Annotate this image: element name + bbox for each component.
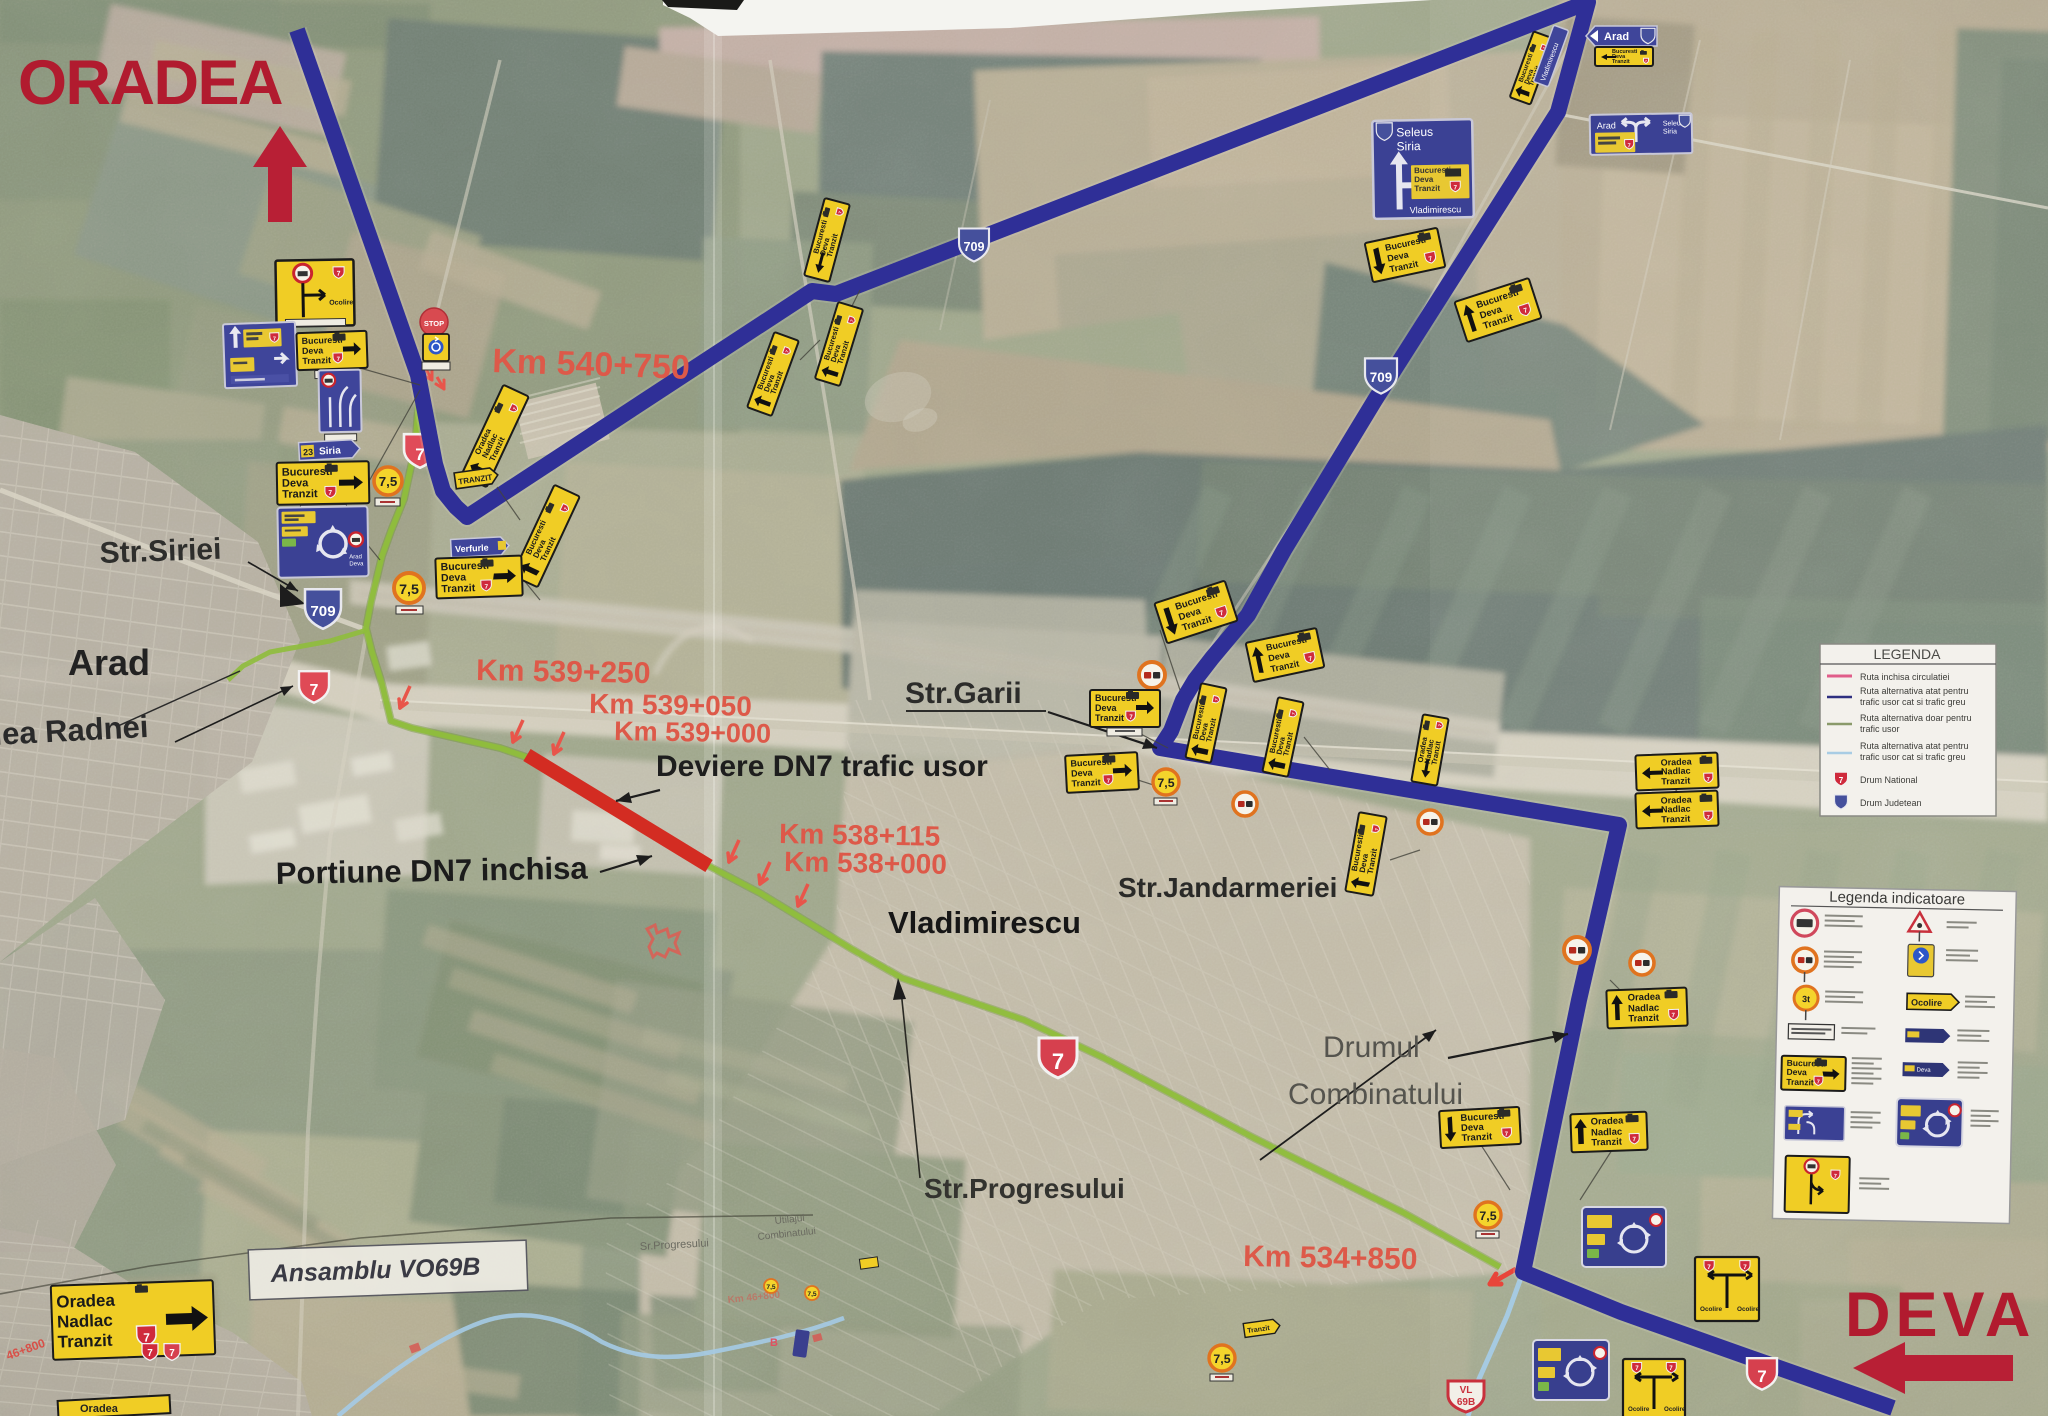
svg-text:Tranzit: Tranzit	[1661, 814, 1690, 825]
svg-text:Ruta inchisa circulatiei: Ruta inchisa circulatiei	[1860, 672, 1950, 682]
svg-text:Tranzit: Tranzit	[1628, 1013, 1660, 1025]
svg-text:Ruta alternativa atat pentru: Ruta alternativa atat pentru	[1860, 686, 1969, 696]
svg-text:7: 7	[1707, 1264, 1711, 1271]
svg-text:7: 7	[1839, 776, 1844, 785]
svg-text:7: 7	[1817, 1079, 1820, 1085]
svg-text:709: 709	[310, 603, 335, 620]
svg-text:Ruta alternativa doar pentru: Ruta alternativa doar pentru	[1860, 713, 1972, 723]
svg-text:Seleus: Seleus	[1396, 125, 1433, 140]
svg-text:7: 7	[1052, 1049, 1064, 1074]
svg-text:7,5: 7,5	[1479, 1209, 1496, 1223]
svg-text:69B: 69B	[1457, 1397, 1475, 1408]
svg-text:7,5: 7,5	[1157, 776, 1174, 790]
svg-text:Ocolire: Ocolire	[1911, 997, 1942, 1008]
svg-text:Tranzit: Tranzit	[1414, 184, 1440, 193]
svg-text:Deva: Deva	[349, 561, 364, 567]
svg-text:Deviere DN7 trafic usor: Deviere DN7 trafic usor	[656, 750, 988, 783]
svg-text:7: 7	[143, 1330, 150, 1344]
svg-text:Tranzit: Tranzit	[57, 1331, 113, 1352]
svg-text:Ocolire: Ocolire	[1664, 1406, 1686, 1413]
svg-text:Siria: Siria	[1663, 128, 1677, 135]
svg-text:Drum National: Drum National	[1860, 775, 1918, 785]
svg-text:7: 7	[1757, 1367, 1766, 1386]
svg-text:Ruta alternativa atat pentru: Ruta alternativa atat pentru	[1860, 741, 1969, 751]
svg-text:3t: 3t	[1802, 994, 1810, 1004]
svg-text:7: 7	[1635, 1365, 1639, 1372]
svg-text:Verfurle: Verfurle	[455, 543, 489, 555]
svg-text:LEGENDA: LEGENDA	[1874, 646, 1942, 662]
svg-text:Tranzit: Tranzit	[1786, 1077, 1814, 1088]
svg-text:trafic usor cat si trafic greu: trafic usor cat si trafic greu	[1860, 697, 1966, 707]
svg-text:Combinatului: Combinatului	[1288, 1078, 1463, 1111]
svg-text:Ocolire: Ocolire	[1628, 1406, 1650, 1413]
svg-text:Str.Jandarmeriei: Str.Jandarmeriei	[1118, 872, 1337, 903]
svg-text:Siria: Siria	[319, 445, 342, 457]
svg-text:7: 7	[1707, 777, 1710, 783]
svg-text:Arad: Arad	[1597, 120, 1616, 130]
svg-text:Tranzit: Tranzit	[1071, 777, 1100, 789]
svg-text:Vladimirescu: Vladimirescu	[1410, 204, 1462, 215]
svg-text:7: 7	[337, 271, 341, 278]
svg-text:trafic usor cat si trafic greu: trafic usor cat si trafic greu	[1860, 752, 1966, 762]
svg-text:Km 540+750: Km 540+750	[492, 342, 691, 387]
svg-text:Vladimirescu: Vladimirescu	[888, 905, 1081, 940]
svg-text:7: 7	[1707, 815, 1710, 821]
svg-text:Km 539+250: Km 539+250	[476, 654, 651, 690]
svg-text:7: 7	[484, 584, 488, 591]
svg-text:7: 7	[169, 1348, 175, 1359]
svg-text:709: 709	[1370, 370, 1392, 385]
svg-text:7,5: 7,5	[766, 1284, 776, 1291]
svg-text:Km 534+850: Km 534+850	[1243, 1240, 1418, 1276]
svg-text:B: B	[770, 1337, 778, 1349]
svg-text:7: 7	[1628, 143, 1631, 149]
svg-text:Oradea: Oradea	[80, 1403, 119, 1415]
svg-text:Tranzit: Tranzit	[282, 488, 318, 501]
svg-text:Tranzit: Tranzit	[1461, 1131, 1493, 1144]
svg-text:7: 7	[273, 336, 276, 342]
svg-text:Drumul: Drumul	[1323, 1031, 1420, 1064]
svg-text:7: 7	[1743, 1264, 1747, 1271]
svg-text:7: 7	[147, 1348, 153, 1359]
svg-text:VL: VL	[1460, 1385, 1473, 1396]
svg-text:Km 538+000: Km 538+000	[784, 846, 947, 880]
svg-text:Tranzit: Tranzit	[1612, 59, 1630, 65]
svg-text:trafic usor: trafic usor	[1860, 724, 1900, 734]
svg-text:Ocolire: Ocolire	[329, 299, 353, 306]
svg-text:Tranzit: Tranzit	[302, 355, 331, 366]
svg-text:Ocolire: Ocolire	[1737, 1306, 1759, 1313]
svg-text:7: 7	[328, 490, 332, 497]
svg-text:Tranzit: Tranzit	[1661, 776, 1690, 787]
svg-text:Ocolire: Ocolire	[1700, 1306, 1722, 1313]
svg-text:Km 539+000: Km 539+000	[614, 716, 771, 749]
svg-text:7: 7	[1645, 59, 1647, 63]
svg-text:7,5: 7,5	[399, 582, 419, 598]
svg-text:Deva: Deva	[1414, 175, 1434, 184]
svg-text:7: 7	[1669, 1365, 1673, 1372]
svg-text:Siria: Siria	[1396, 139, 1421, 153]
svg-text:7,5: 7,5	[379, 474, 398, 489]
svg-text:Oradea: Oradea	[56, 1291, 116, 1312]
svg-text:Drum Judetean: Drum Judetean	[1860, 798, 1922, 808]
svg-text:Arad: Arad	[349, 554, 362, 560]
svg-text:Str.Progresului: Str.Progresului	[924, 1173, 1125, 1204]
svg-text:Arad: Arad	[1604, 31, 1629, 43]
svg-text:7,5: 7,5	[807, 1291, 817, 1298]
svg-text:Deva: Deva	[1095, 703, 1118, 713]
svg-text:7: 7	[1834, 1174, 1837, 1180]
svg-text:Nadlac: Nadlac	[57, 1311, 113, 1332]
svg-text:ORADEA: ORADEA	[18, 48, 282, 118]
svg-text:Tranzit: Tranzit	[1095, 713, 1124, 723]
svg-text:Tranzit: Tranzit	[1591, 1137, 1623, 1149]
svg-text:Tranzit: Tranzit	[441, 582, 476, 595]
svg-text:Str.Garii: Str.Garii	[905, 677, 1022, 710]
svg-text:709: 709	[963, 240, 984, 254]
svg-text:Deva: Deva	[1786, 1067, 1807, 1077]
svg-text:Arad: Arad	[68, 642, 150, 683]
svg-text:7,5: 7,5	[1213, 1352, 1230, 1366]
svg-text:DEVA: DEVA	[1845, 1280, 2035, 1350]
svg-text:7: 7	[310, 682, 319, 699]
svg-text:23: 23	[303, 447, 314, 458]
svg-text:Deva: Deva	[1917, 1067, 1932, 1073]
svg-text:STOP: STOP	[424, 319, 444, 328]
svg-text:Str.Siriei: Str.Siriei	[99, 533, 222, 570]
svg-text:Portiune DN7 inchisa: Portiune DN7 inchisa	[276, 851, 589, 891]
svg-text:Legenda indicatoare: Legenda indicatoare	[1829, 889, 1965, 909]
